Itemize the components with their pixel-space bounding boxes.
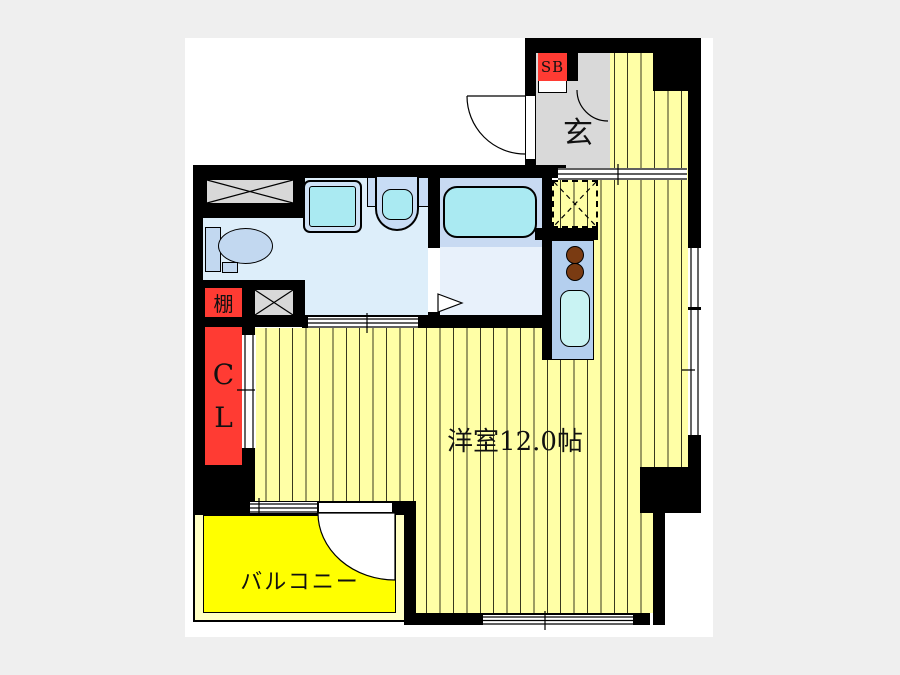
bottom-window: [483, 615, 633, 625]
bathtub-icon: [443, 186, 537, 238]
dashed-storage-icon: [552, 180, 598, 228]
toilet-icon: [218, 228, 273, 264]
right-window-upper: [688, 248, 701, 307]
wall-right-lower: [653, 513, 665, 625]
entrance-door-arc-icon: [467, 96, 525, 154]
page: { "plan": { "title": "apartment-floor-pl…: [0, 0, 900, 675]
kitchen-stove-burner-icon: [566, 246, 584, 264]
balcony-door-leaf: [318, 502, 393, 513]
closet-label-c: C: [213, 353, 234, 396]
floor-plan-canvas: バルコニー SB 棚 C L: [185, 38, 713, 637]
entrance-door-leaf: [525, 95, 536, 160]
balcony-window: [250, 502, 317, 513]
wall-bottom-right-corner: [640, 467, 700, 513]
entrance-label: 玄: [548, 110, 608, 150]
storage-x-box-icon: [253, 288, 295, 317]
shoe-box: SB: [538, 53, 567, 81]
wall-top-right-corner: [653, 38, 701, 91]
vanity-sink-basin-icon: [309, 186, 356, 227]
closet-label-l: L: [214, 396, 233, 439]
closet-sliding-door: [242, 335, 256, 448]
washing-machine-pan-icon: [205, 178, 295, 205]
main-room-label: 洋室12.0帖: [415, 422, 615, 456]
balcony-label: バルコニー: [215, 566, 385, 594]
wall-sb-side: [567, 53, 578, 81]
right-window-lower: [688, 310, 701, 435]
bathroom-floor-lower: [440, 247, 542, 322]
wall-left: [193, 178, 203, 280]
wash-basin-icon: [382, 189, 413, 220]
toilet-flush-icon: [222, 262, 238, 273]
washroom-sliding-door: [308, 317, 418, 328]
wall-kitchen-top: [535, 228, 598, 240]
bathroom-door-opening: [428, 248, 440, 312]
wall-entrance-left: [525, 53, 536, 95]
shoe-box-base: [538, 81, 567, 93]
shelf-box: 棚: [205, 288, 242, 317]
kitchen-stove-burner-icon: [566, 263, 584, 281]
closet-box: C L: [205, 327, 242, 465]
kitchen-sink-icon: [560, 290, 590, 347]
hallway-sliding-door: [558, 168, 687, 180]
